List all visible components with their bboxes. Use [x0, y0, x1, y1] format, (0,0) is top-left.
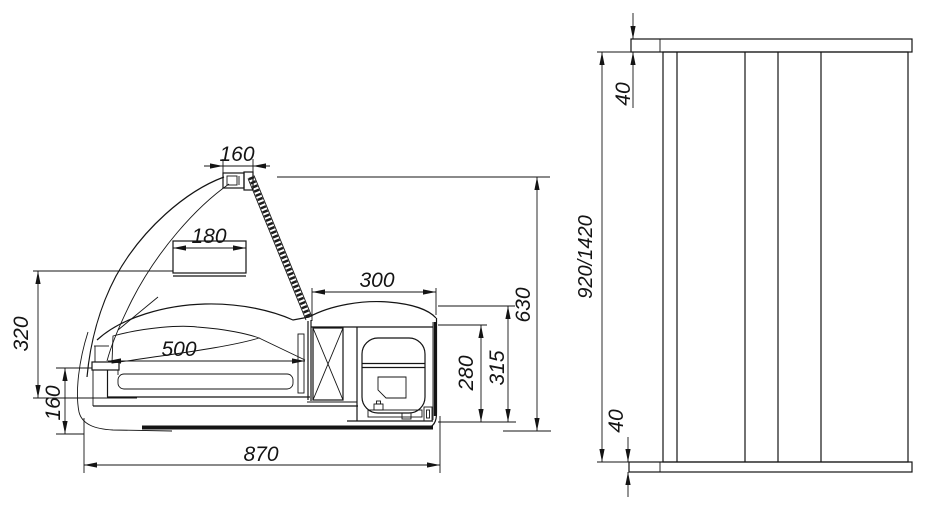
- side-view: [77, 172, 436, 431]
- drawing-canvas: 160 180 300 500 320: [0, 0, 927, 514]
- front-bottom-panel: [629, 462, 912, 472]
- dim-machine-inner-height: 280: [438, 325, 487, 422]
- starter-relay: [424, 407, 432, 421]
- front-view-dimensions: 920/1420 40 40: [575, 13, 663, 497]
- dim-top-panel-thickness: 40: [612, 13, 636, 108]
- dim-label-machine-inner-height: 280: [455, 355, 478, 391]
- front-glass-curve: [87, 177, 229, 377]
- front-body: [663, 52, 908, 462]
- dim-bottom-panel-thickness: 40: [605, 409, 631, 497]
- compressor: [362, 338, 425, 419]
- front-view: [629, 39, 912, 472]
- condenser-coil: [313, 328, 343, 400]
- dim-base-height: 160: [42, 368, 92, 434]
- display-tub: [92, 297, 358, 406]
- dim-label-front-total-height: 920/1420: [575, 215, 597, 298]
- rear-glass-panel: [248, 176, 312, 321]
- dim-front-total-height: 920/1420: [575, 52, 605, 462]
- dim-label-overall-height-side: 630: [512, 287, 535, 322]
- dim-label-lamp-width: 160: [219, 143, 254, 166]
- dim-overall-height-side: 630: [277, 177, 551, 431]
- dim-machine-top-width: 300: [312, 269, 436, 321]
- dim-label-top-panel: 40: [612, 82, 635, 106]
- drawing-page: 160 180 300 500 320: [0, 0, 927, 514]
- machine-compartment: [298, 318, 437, 428]
- dim-glass-height: 320: [10, 271, 173, 398]
- dim-lamp-width: 160: [204, 143, 270, 175]
- dim-shelf-width: 180: [173, 225, 246, 251]
- dim-label-bottom-panel: 40: [605, 409, 628, 433]
- dim-label-shelf-width: 180: [191, 225, 226, 248]
- dim-label-glass-height: 320: [10, 316, 33, 351]
- lamp-assembly: [223, 172, 253, 190]
- front-top-panel: [631, 39, 912, 52]
- side-view-dimensions: 160 180 300 500 320: [10, 143, 551, 473]
- dim-label-overall-depth: 870: [243, 443, 278, 466]
- front-panel-seams: [677, 52, 821, 462]
- dim-overall-depth: 870: [84, 416, 440, 473]
- dim-label-machine-top-width: 300: [359, 269, 394, 292]
- dim-label-inner-height: 315: [486, 350, 509, 385]
- dim-label-base-height: 160: [42, 385, 65, 420]
- body-top-profile: [97, 302, 436, 340]
- dim-label-deck-length: 500: [161, 338, 196, 361]
